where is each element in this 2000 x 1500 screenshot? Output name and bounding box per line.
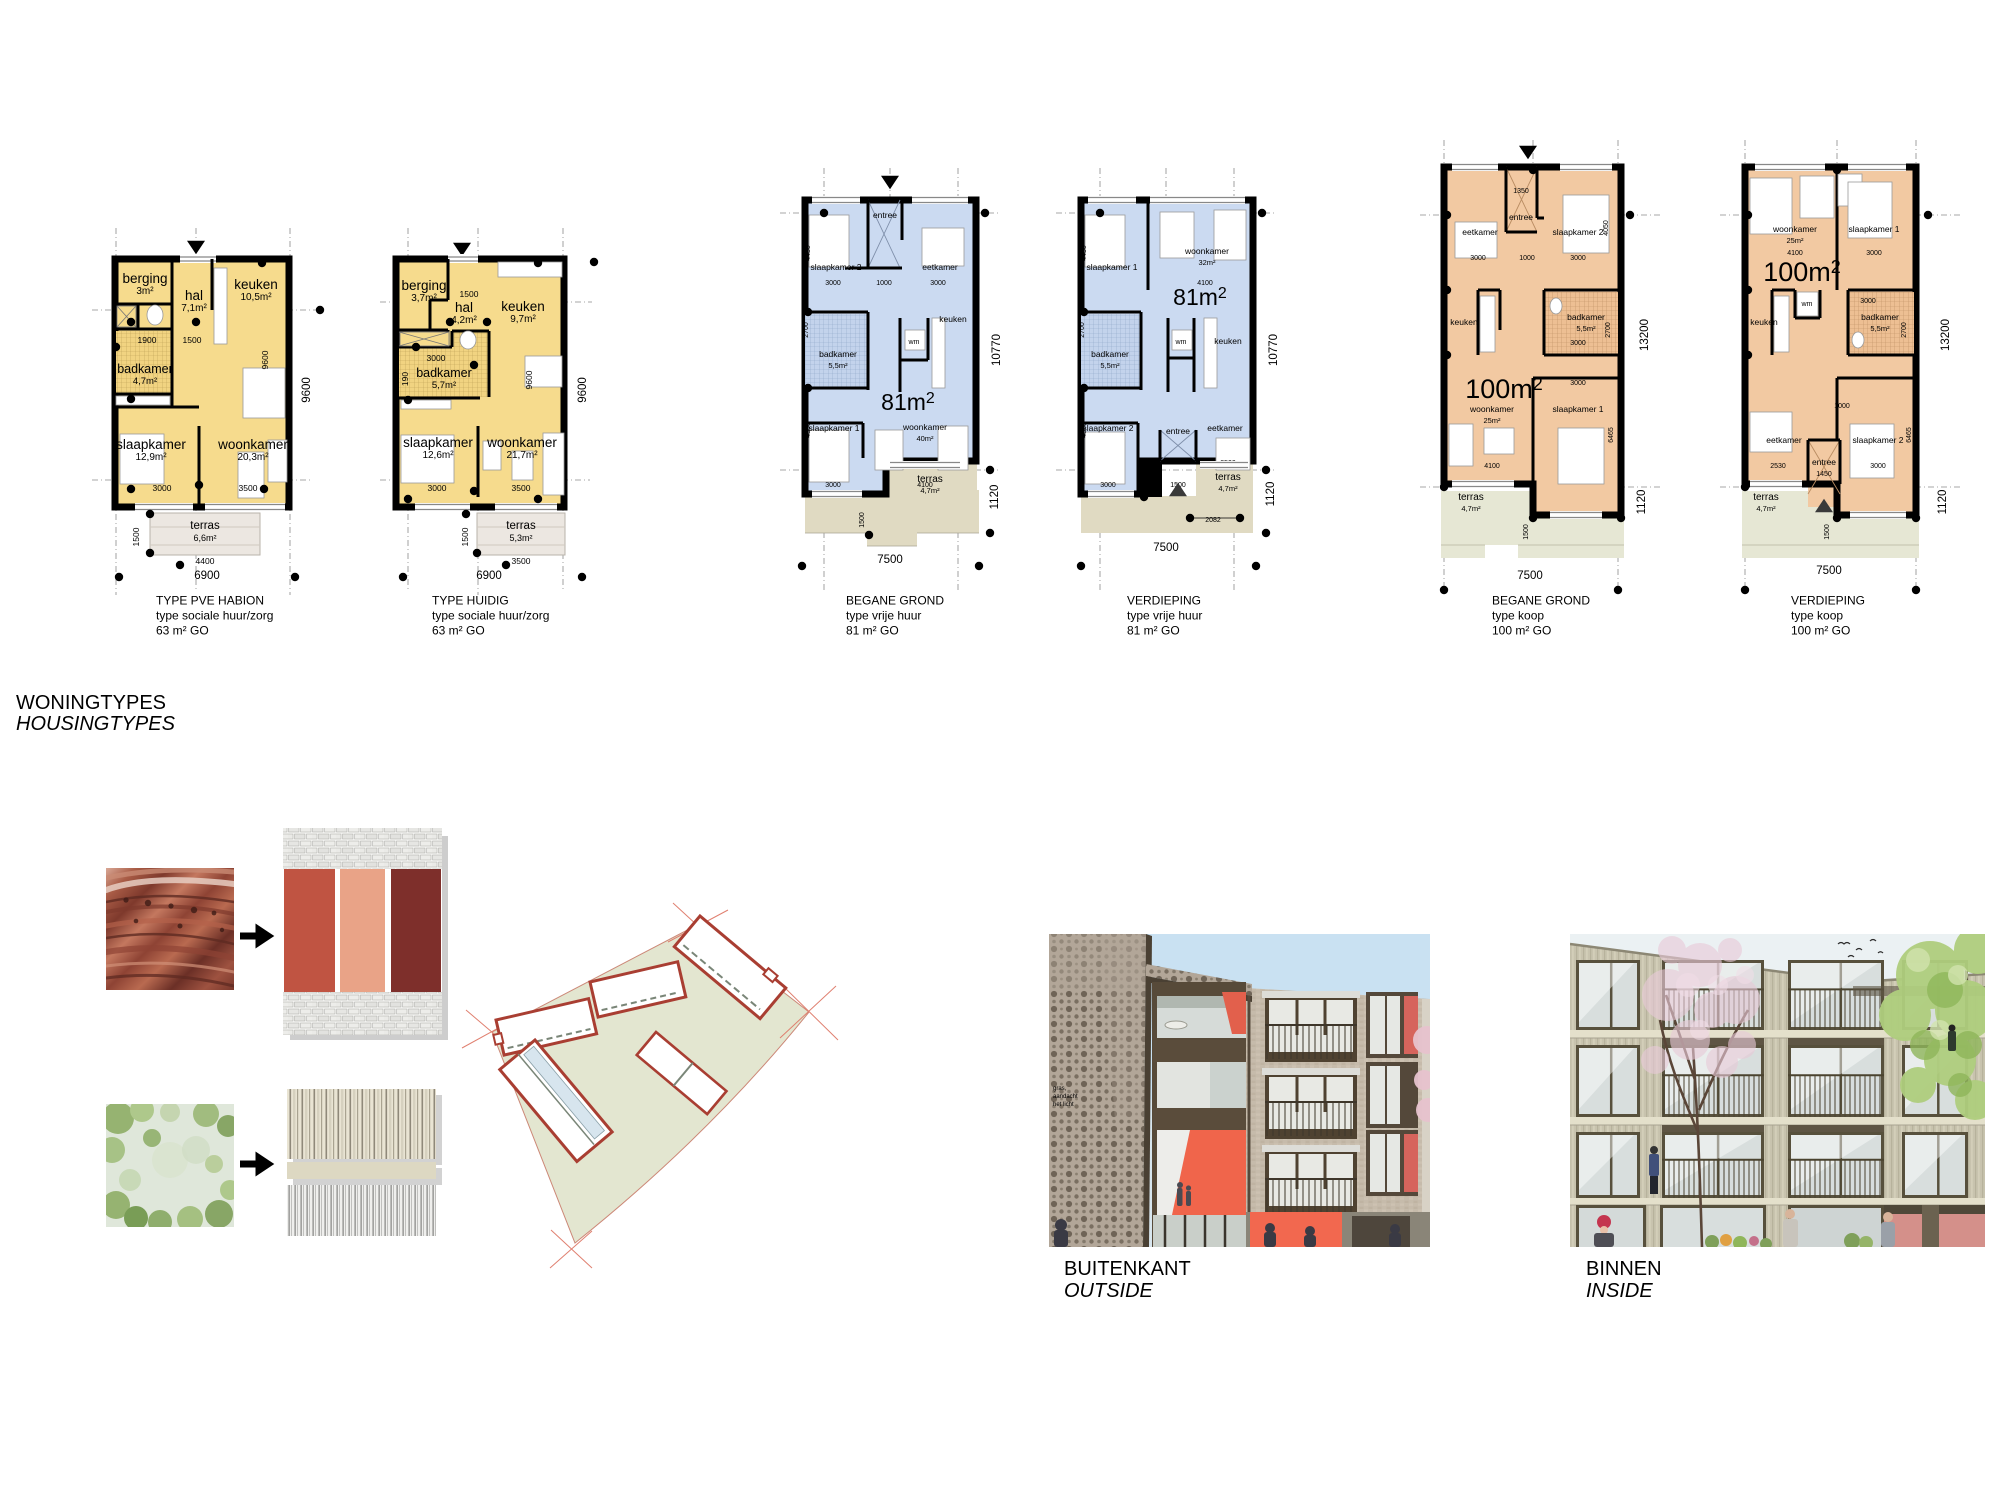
- svg-text:25m²: 25m²: [1483, 416, 1501, 425]
- svg-text:VERDIEPING: VERDIEPING: [1127, 594, 1201, 608]
- svg-text:1000: 1000: [1519, 255, 1535, 262]
- svg-text:BEGANE GROND: BEGANE GROND: [1492, 594, 1590, 608]
- svg-text:1500: 1500: [183, 335, 202, 345]
- svg-text:3000: 3000: [427, 353, 446, 363]
- svg-text:3,7m²: 3,7m²: [411, 293, 437, 304]
- svg-text:6,6m²: 6,6m²: [193, 533, 216, 543]
- svg-text:1120: 1120: [989, 485, 1001, 510]
- svg-text:5,5m²: 5,5m²: [1100, 361, 1120, 370]
- svg-text:3000: 3000: [1870, 463, 1886, 470]
- svg-text:hal: hal: [185, 288, 203, 303]
- svg-text:INSIDE: INSIDE: [1586, 1280, 1653, 1302]
- svg-text:eetkamer: eetkamer: [1462, 227, 1498, 237]
- svg-text:6465: 6465: [1608, 427, 1615, 443]
- svg-text:hal: hal: [455, 300, 473, 315]
- svg-text:81 m² GO: 81 m² GO: [1127, 624, 1180, 638]
- svg-text:WONINGTYPES: WONINGTYPES: [16, 692, 166, 714]
- svg-text:type sociale huur/zorg: type sociale huur/zorg: [432, 609, 549, 623]
- svg-text:25m²: 25m²: [1786, 236, 1804, 245]
- svg-text:wm: wm: [1801, 301, 1813, 308]
- svg-text:1500: 1500: [460, 527, 470, 546]
- svg-text:3000: 3000: [1866, 250, 1882, 257]
- svg-text:1500: 1500: [1523, 524, 1530, 540]
- svg-text:TYPE PVE HABION: TYPE PVE HABION: [156, 594, 264, 608]
- svg-text:slaapkamer 2: slaapkamer 2: [1852, 435, 1903, 445]
- svg-text:2700: 2700: [1901, 322, 1908, 338]
- svg-text:badkamer: badkamer: [117, 362, 173, 376]
- svg-text:aandacht: aandacht: [1053, 1094, 1078, 1100]
- svg-text:4,7m²: 4,7m²: [1218, 484, 1238, 493]
- svg-text:7,1m²: 7,1m²: [181, 303, 207, 314]
- svg-text:4100: 4100: [1787, 250, 1803, 257]
- svg-text:BUITENKANT: BUITENKANT: [1064, 1258, 1191, 1280]
- svg-text:3000: 3000: [930, 280, 946, 287]
- svg-text:40m²: 40m²: [916, 434, 934, 443]
- svg-text:3500: 3500: [239, 483, 258, 493]
- svg-text:6900: 6900: [476, 570, 502, 582]
- svg-text:190: 190: [400, 372, 410, 386]
- svg-text:badkamer: badkamer: [819, 349, 857, 359]
- svg-text:3500: 3500: [512, 483, 531, 493]
- svg-text:4,7m²: 4,7m²: [1461, 504, 1481, 513]
- svg-text:3000: 3000: [1570, 380, 1586, 387]
- svg-text:TYPE HUIDIG: TYPE HUIDIG: [432, 594, 509, 608]
- svg-text:slaapkamer 1: slaapkamer 1: [808, 423, 859, 433]
- svg-text:entree: entree: [1166, 426, 1190, 436]
- svg-text:1500: 1500: [859, 512, 866, 528]
- svg-text:1500: 1500: [1824, 524, 1831, 540]
- svg-text:1500: 1500: [460, 289, 479, 299]
- svg-text:VERDIEPING: VERDIEPING: [1791, 594, 1865, 608]
- svg-text:HOUSINGTYPES: HOUSINGTYPES: [16, 713, 176, 735]
- svg-text:3000: 3000: [1570, 255, 1586, 262]
- svg-text:3000: 3000: [1860, 298, 1876, 305]
- svg-text:3000: 3000: [825, 280, 841, 287]
- svg-text:eetkamer: eetkamer: [1766, 435, 1802, 445]
- svg-text:4100: 4100: [1197, 280, 1213, 287]
- svg-text:3000: 3000: [428, 483, 447, 493]
- svg-text:keuken: keuken: [1214, 336, 1242, 346]
- svg-text:entree: entree: [1812, 457, 1836, 467]
- svg-text:OUTSIDE: OUTSIDE: [1064, 1280, 1154, 1302]
- svg-text:woonkamer: woonkamer: [217, 437, 288, 452]
- svg-text:keuken: keuken: [1450, 317, 1478, 327]
- svg-text:slaapkamer: slaapkamer: [116, 437, 186, 452]
- svg-text:5,3m²: 5,3m²: [509, 533, 532, 543]
- svg-text:3000: 3000: [1470, 255, 1486, 262]
- svg-text:81 m² GO: 81 m² GO: [846, 624, 899, 638]
- svg-text:1000: 1000: [876, 280, 892, 287]
- svg-text:terras: terras: [1458, 492, 1484, 503]
- svg-text:1120: 1120: [1265, 482, 1277, 507]
- svg-text:2700: 2700: [1079, 322, 1086, 338]
- svg-text:4550: 4550: [805, 422, 812, 438]
- svg-text:het licht: het licht: [1053, 1102, 1074, 1108]
- svg-text:slaapkamer: slaapkamer: [403, 435, 473, 450]
- svg-text:5,5m²: 5,5m²: [1576, 324, 1596, 333]
- svg-text:berging: berging: [401, 278, 446, 293]
- svg-text:badkamer: badkamer: [1091, 349, 1129, 359]
- svg-text:gras,: gras,: [1053, 1086, 1067, 1092]
- svg-text:2530: 2530: [1770, 463, 1786, 470]
- svg-text:slaapkamer 1: slaapkamer 1: [1848, 224, 1899, 234]
- svg-text:badkamer: badkamer: [1567, 312, 1605, 322]
- svg-text:7500: 7500: [1517, 570, 1543, 582]
- svg-text:entree: entree: [1509, 212, 1533, 222]
- svg-text:21,7m²: 21,7m²: [506, 450, 538, 461]
- svg-text:7500: 7500: [1816, 565, 1842, 577]
- svg-text:1120: 1120: [1636, 490, 1648, 515]
- svg-text:2700: 2700: [1605, 322, 1612, 338]
- svg-text:woonkamer: woonkamer: [1184, 246, 1229, 256]
- svg-text:4050: 4050: [1603, 220, 1610, 236]
- svg-text:keuken: keuken: [501, 299, 545, 314]
- svg-text:100m2: 100m2: [1763, 257, 1841, 287]
- svg-text:keuken: keuken: [234, 277, 278, 292]
- svg-text:13200: 13200: [1940, 319, 1952, 351]
- svg-text:4100: 4100: [917, 482, 933, 489]
- svg-text:9600: 9600: [577, 377, 589, 403]
- svg-text:100 m² GO: 100 m² GO: [1492, 624, 1551, 638]
- svg-text:3000: 3000: [153, 483, 172, 493]
- svg-text:woonkamer: woonkamer: [902, 422, 947, 432]
- svg-text:3000: 3000: [1570, 340, 1586, 347]
- svg-text:10770: 10770: [991, 334, 1003, 366]
- svg-text:1450: 1450: [1816, 471, 1832, 478]
- svg-text:badkamer: badkamer: [416, 366, 472, 380]
- svg-text:9600: 9600: [524, 370, 534, 389]
- svg-text:type sociale huur/zorg: type sociale huur/zorg: [156, 609, 273, 623]
- svg-text:7500: 7500: [1153, 542, 1179, 554]
- svg-text:10,5m²: 10,5m²: [240, 292, 272, 303]
- svg-text:4100: 4100: [1484, 463, 1500, 470]
- svg-text:4,7m²: 4,7m²: [1756, 504, 1776, 513]
- svg-text:slaapkamer 1: slaapkamer 1: [1086, 262, 1137, 272]
- svg-text:1900: 1900: [138, 335, 157, 345]
- svg-text:slaapkamer 2: slaapkamer 2: [1552, 227, 1603, 237]
- svg-text:5,7m²: 5,7m²: [432, 380, 456, 391]
- svg-text:type koop: type koop: [1492, 609, 1544, 623]
- svg-text:keuken: keuken: [939, 314, 967, 324]
- svg-text:entree: entree: [873, 210, 897, 220]
- svg-text:1000: 1000: [1834, 403, 1850, 410]
- svg-text:1120: 1120: [1937, 490, 1949, 515]
- svg-text:wm: wm: [1175, 339, 1187, 346]
- svg-text:7500: 7500: [877, 554, 903, 566]
- svg-text:12,9m²: 12,9m²: [135, 452, 167, 463]
- svg-text:63 m² GO: 63 m² GO: [432, 624, 485, 638]
- svg-text:berging: berging: [122, 271, 167, 286]
- svg-text:eetkamer: eetkamer: [1207, 423, 1243, 433]
- svg-text:12,6m²: 12,6m²: [422, 450, 454, 461]
- svg-text:6465: 6465: [1906, 427, 1913, 443]
- svg-text:32m²: 32m²: [1198, 258, 1216, 267]
- svg-text:9600: 9600: [260, 350, 270, 369]
- svg-text:slaapkamer 2: slaapkamer 2: [1082, 423, 1133, 433]
- svg-text:badkamer: badkamer: [1861, 312, 1899, 322]
- svg-text:4,7m²: 4,7m²: [133, 376, 157, 387]
- svg-text:2700: 2700: [803, 322, 810, 338]
- svg-text:13200: 13200: [1639, 319, 1651, 351]
- svg-text:slaapkamer 2: slaapkamer 2: [810, 262, 861, 272]
- svg-text:woonkamer: woonkamer: [1772, 224, 1817, 234]
- svg-text:eetkamer: eetkamer: [922, 262, 958, 272]
- svg-text:type vrije huur: type vrije huur: [846, 609, 921, 623]
- svg-text:BEGANE GROND: BEGANE GROND: [846, 594, 944, 608]
- svg-text:3m²: 3m²: [136, 286, 154, 297]
- svg-text:4550: 4550: [1081, 422, 1088, 438]
- svg-text:4450: 4450: [805, 245, 812, 261]
- svg-text:3000: 3000: [1100, 482, 1116, 489]
- svg-text:3500: 3500: [512, 556, 531, 566]
- svg-text:BINNEN: BINNEN: [1586, 1258, 1662, 1280]
- svg-text:4450: 4450: [1081, 245, 1088, 261]
- svg-text:terras: terras: [1215, 472, 1241, 483]
- svg-text:keuken: keuken: [1750, 317, 1778, 327]
- svg-text:100m2: 100m2: [1465, 374, 1543, 404]
- svg-text:4400: 4400: [196, 556, 215, 566]
- svg-text:type vrije huur: type vrije huur: [1127, 609, 1202, 623]
- svg-text:6900: 6900: [194, 570, 220, 582]
- svg-text:20,3m²: 20,3m²: [237, 452, 269, 463]
- svg-text:1350: 1350: [1513, 188, 1529, 195]
- svg-text:3000: 3000: [825, 482, 841, 489]
- svg-text:10770: 10770: [1268, 334, 1280, 366]
- svg-text:9,7m²: 9,7m²: [510, 314, 536, 325]
- svg-text:5,5m²: 5,5m²: [1870, 324, 1890, 333]
- svg-text:5,5m²: 5,5m²: [828, 361, 848, 370]
- svg-text:wm: wm: [908, 339, 920, 346]
- svg-text:4,2m²: 4,2m²: [451, 315, 477, 326]
- svg-text:slaapkamer 1: slaapkamer 1: [1552, 404, 1603, 414]
- svg-text:type koop: type koop: [1791, 609, 1843, 623]
- svg-text:terras: terras: [1753, 492, 1779, 503]
- svg-text:9600: 9600: [301, 377, 313, 403]
- svg-text:100 m² GO: 100 m² GO: [1791, 624, 1850, 638]
- svg-text:woonkamer: woonkamer: [1469, 404, 1514, 414]
- svg-text:terras: terras: [190, 520, 220, 532]
- svg-text:63 m² GO: 63 m² GO: [156, 624, 209, 638]
- svg-text:woonkamer: woonkamer: [486, 435, 557, 450]
- svg-text:terras: terras: [506, 520, 536, 532]
- svg-text:1500: 1500: [131, 527, 141, 546]
